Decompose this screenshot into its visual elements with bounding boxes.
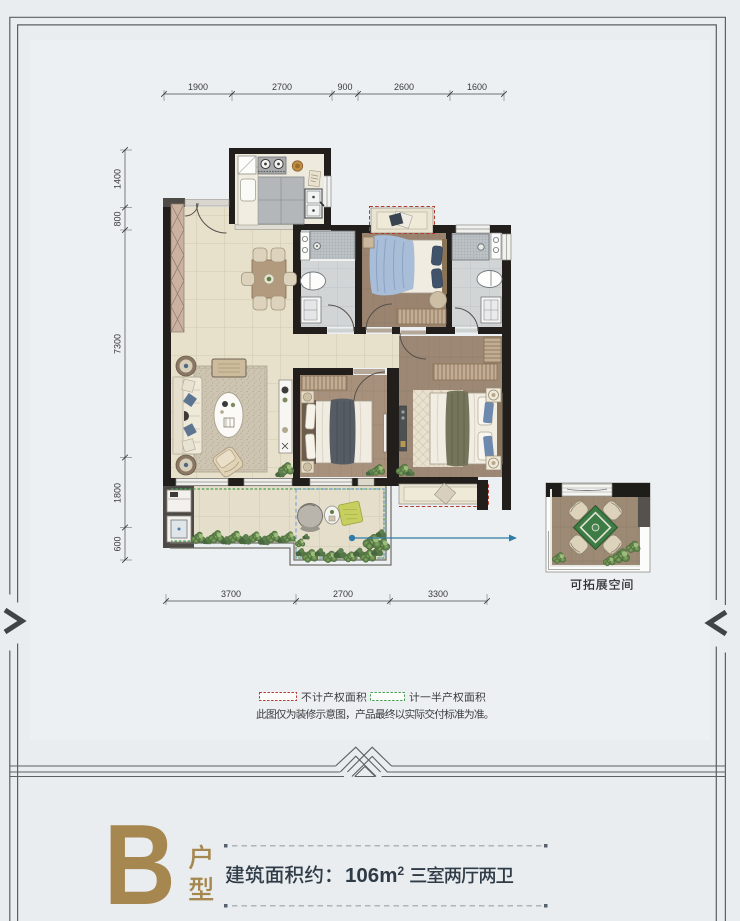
svg-text:7300: 7300: [113, 334, 123, 354]
svg-text:600: 600: [113, 536, 123, 551]
svg-text:1800: 1800: [113, 483, 123, 503]
svg-text:2700: 2700: [272, 82, 292, 92]
svg-text:800: 800: [113, 211, 123, 226]
svg-text:3700: 3700: [221, 589, 241, 599]
svg-text:2600: 2600: [394, 82, 414, 92]
svg-text:106m2: 106m2: [345, 864, 404, 887]
svg-text:900: 900: [337, 82, 352, 92]
svg-text:3300: 3300: [428, 589, 448, 599]
svg-text:1900: 1900: [188, 82, 208, 92]
svg-text:2700: 2700: [333, 589, 353, 599]
svg-text:B: B: [104, 801, 176, 921]
svg-text:1600: 1600: [467, 82, 487, 92]
svg-text:1400: 1400: [113, 169, 123, 189]
